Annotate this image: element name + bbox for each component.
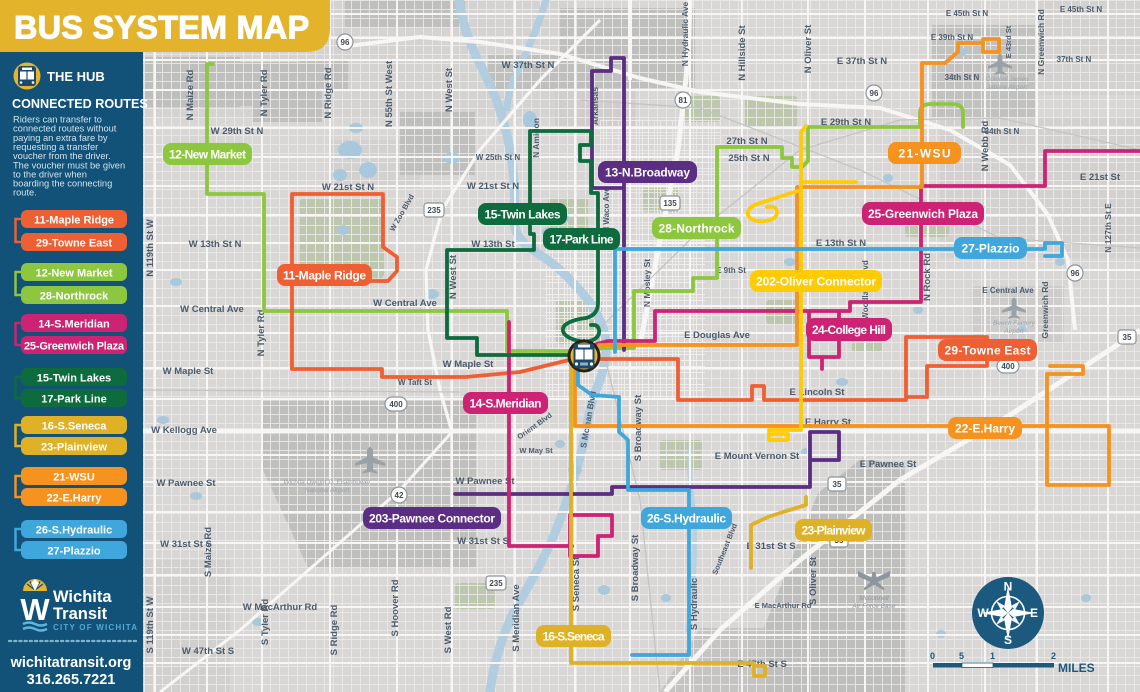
svg-text:W Kellogg Ave: W Kellogg Ave	[151, 425, 217, 436]
svg-text:29-Towne East: 29-Towne East	[945, 344, 1031, 358]
svg-text:W Pawnee St: W Pawnee St	[455, 476, 515, 487]
svg-text:14-S.Meridian: 14-S.Meridian	[470, 397, 542, 411]
svg-text:E 45th St N: E 45th St N	[1060, 5, 1102, 14]
svg-text:Air Force Base: Air Force Base	[852, 603, 896, 610]
svg-text:25-Greenwich Plaza: 25-Greenwich Plaza	[24, 341, 125, 353]
svg-text:S Ridge Rd: S Ridge Rd	[329, 604, 340, 655]
svg-text:Jabara Airport: Jabara Airport	[986, 84, 1029, 91]
svg-text:E 45th St N: E 45th St N	[946, 9, 988, 18]
svg-text:wichitatransit.org: wichitatransit.org	[10, 655, 132, 671]
svg-text:S: S	[1004, 633, 1012, 647]
svg-text:27-Plazzio: 27-Plazzio	[962, 242, 1020, 256]
svg-text:28-Northrock: 28-Northrock	[659, 222, 735, 236]
svg-text:N Webb Rd: N Webb Rd	[980, 121, 991, 172]
svg-text:N Ridge Rd: N Ridge Rd	[323, 67, 334, 118]
svg-text:W: W	[20, 592, 50, 627]
svg-text:E 21st St: E 21st St	[1080, 172, 1121, 183]
svg-text:0: 0	[930, 651, 935, 661]
svg-text:26-S.Hydraulic: 26-S.Hydraulic	[36, 525, 112, 537]
svg-text:21-WSU: 21-WSU	[899, 147, 951, 161]
svg-text:N Maize Rd: N Maize Rd	[185, 69, 196, 120]
svg-text:N Tyler Rd: N Tyler Rd	[256, 309, 267, 356]
svg-text:N Hydraulic Ave: N Hydraulic Ave	[680, 1, 690, 66]
svg-text:E: E	[1030, 606, 1038, 620]
svg-text:Greenwich Rd: Greenwich Rd	[1040, 281, 1050, 338]
svg-text:E Lincoln St: E Lincoln St	[790, 387, 846, 398]
svg-text:12-New Market: 12-New Market	[35, 268, 112, 280]
svg-text:23-Plainview: 23-Plainview	[802, 524, 867, 538]
svg-text:42: 42	[395, 491, 404, 500]
svg-text:S Broadway St: S Broadway St	[630, 534, 641, 601]
svg-text:N Greenwich Rd: N Greenwich Rd	[1036, 9, 1046, 75]
svg-text:29-Towne East: 29-Towne East	[36, 238, 113, 250]
svg-text:W Central Ave: W Central Ave	[180, 304, 244, 315]
svg-text:400: 400	[1001, 362, 1015, 371]
svg-text:15-Twin Lakes: 15-Twin Lakes	[37, 373, 111, 385]
svg-text:400: 400	[389, 400, 403, 409]
svg-text:5: 5	[959, 651, 964, 661]
svg-text:35: 35	[833, 480, 842, 489]
svg-text:S West Rd: S West Rd	[443, 606, 454, 653]
svg-text:W Central Ave: W Central Ave	[373, 298, 437, 309]
svg-text:27-Plazzio: 27-Plazzio	[47, 546, 100, 558]
svg-text:N 127th St E: N 127th St E	[1103, 203, 1113, 253]
svg-text:W May St: W May St	[519, 446, 553, 455]
svg-text:1: 1	[990, 651, 995, 661]
svg-text:W Maple St: W Maple St	[163, 366, 215, 377]
svg-text:W MacArthur Rd: W MacArthur Rd	[243, 602, 318, 613]
svg-text:202-Oliver Connector: 202-Oliver Connector	[756, 275, 876, 289]
svg-text:35: 35	[1123, 333, 1132, 342]
svg-text:W 21st St N: W 21st St N	[467, 181, 519, 192]
svg-text:Colonel James: Colonel James	[986, 76, 1030, 83]
svg-text:N Rock Rd: N Rock Rd	[922, 253, 933, 301]
svg-text:N: N	[1004, 580, 1013, 594]
svg-text:S Oliver St: S Oliver St	[808, 556, 819, 605]
svg-text:E 39th St N: E 39th St N	[931, 33, 973, 42]
svg-text:96: 96	[1071, 269, 1080, 278]
svg-text:E Mount Vernon St: E Mount Vernon St	[715, 451, 800, 462]
svg-text:CONNECTED ROUTES: CONNECTED ROUTES	[12, 97, 148, 111]
svg-text:W 29th St N: W 29th St N	[211, 126, 264, 137]
svg-text:E Douglas Ave: E Douglas Ave	[684, 330, 750, 341]
svg-text:12-New Market: 12-New Market	[169, 148, 246, 162]
svg-text:23-Plainview: 23-Plainview	[41, 442, 107, 454]
svg-text:W 31st St S: W 31st St S	[457, 536, 509, 547]
svg-text:Transit: Transit	[53, 605, 108, 623]
svg-text:14-S.Meridian: 14-S.Meridian	[38, 319, 110, 331]
svg-text:15-Twin Lakes: 15-Twin Lakes	[485, 208, 561, 222]
svg-text:W: W	[977, 606, 989, 620]
svg-text:W Taft St: W Taft St	[398, 378, 432, 387]
svg-text:E 37th St N: E 37th St N	[837, 56, 887, 67]
svg-text:2: 2	[1051, 651, 1056, 661]
svg-text:W 21st St N: W 21st St N	[322, 182, 374, 193]
svg-text:Beech Factory: Beech Factory	[993, 320, 1036, 327]
svg-text:17-Park Line: 17-Park Line	[550, 233, 614, 247]
svg-text:21-WSU: 21-WSU	[53, 472, 95, 484]
svg-text:316.265.7221: 316.265.7221	[27, 672, 116, 688]
svg-text:N 55th St West: N 55th St West	[384, 60, 395, 127]
svg-text:National Airport: National Airport	[305, 487, 351, 494]
svg-text:235: 235	[489, 579, 503, 588]
svg-text:37th St N: 37th St N	[1057, 55, 1092, 64]
svg-text:Wichita Dwight D. Eisenhower: Wichita Dwight D. Eisenhower	[283, 479, 371, 486]
svg-text:22-E.Harry: 22-E.Harry	[955, 422, 1015, 436]
svg-text:Wichita: Wichita	[53, 588, 112, 606]
svg-text:S Meridian Ave: S Meridian Ave	[511, 584, 522, 651]
svg-text:MILES: MILES	[1058, 661, 1095, 675]
svg-text:26-S.Hydraulic: 26-S.Hydraulic	[647, 512, 726, 526]
svg-text:E MacArthur Rd: E MacArthur Rd	[755, 601, 812, 610]
svg-text:N Tyler Rd: N Tyler Rd	[259, 69, 270, 116]
svg-text:S 119th St W: S 119th St W	[145, 596, 156, 653]
svg-text:34th St N: 34th St N	[945, 73, 980, 82]
svg-text:E 31st St S: E 31st St S	[746, 541, 795, 552]
svg-text:16-S.Seneca: 16-S.Seneca	[42, 421, 108, 433]
svg-text:N Waco Ave: N Waco Ave	[602, 187, 611, 233]
svg-text:S Hoover Rd: S Hoover Rd	[390, 579, 401, 636]
svg-text:16-S.Seneca: 16-S.Seneca	[543, 630, 605, 644]
svg-text:W 47th St S: W 47th St S	[182, 646, 234, 657]
svg-text:24-College Hill: 24-College Hill	[812, 323, 886, 337]
svg-text:E Central Ave: E Central Ave	[982, 286, 1034, 295]
svg-text:S Maize Rd: S Maize Rd	[203, 527, 214, 577]
svg-text:N Amidon: N Amidon	[531, 118, 541, 158]
svg-text:22-E.Harry: 22-E.Harry	[46, 493, 102, 505]
svg-text:96: 96	[341, 38, 350, 47]
svg-text:N Oliver St: N Oliver St	[803, 24, 814, 73]
svg-text:13-N.Broadway: 13-N.Broadway	[605, 166, 690, 180]
svg-text:N 119th St W: N 119th St W	[145, 219, 156, 277]
svg-text:Mcconnell: Mcconnell	[859, 595, 889, 602]
svg-text:28-Northrock: 28-Northrock	[40, 291, 109, 303]
svg-text:135: 135	[663, 199, 677, 208]
svg-text:W 13th St N: W 13th St N	[189, 239, 242, 250]
svg-text:11-Maple Ridge: 11-Maple Ridge	[283, 269, 366, 283]
svg-text:N West St: N West St	[448, 254, 459, 299]
svg-text:235: 235	[427, 206, 441, 215]
svg-text:N West St: N West St	[444, 67, 455, 112]
svg-text:203-Pawnee Connector: 203-Pawnee Connector	[369, 512, 495, 526]
svg-text:W Pawnee St: W Pawnee St	[156, 478, 216, 489]
svg-text:THE HUB: THE HUB	[47, 69, 105, 84]
svg-text:Airport: Airport	[1003, 328, 1024, 335]
svg-text:N Hillside St: N Hillside St	[737, 24, 748, 80]
svg-text:25-Greenwich Plaza: 25-Greenwich Plaza	[868, 207, 978, 221]
svg-text:E Pawnee St: E Pawnee St	[860, 459, 917, 470]
svg-text:route.: route.	[13, 188, 37, 198]
svg-text:S Tyler Rd: S Tyler Rd	[260, 599, 271, 645]
svg-text:BUS SYSTEM MAP: BUS SYSTEM MAP	[14, 10, 309, 46]
svg-text:N Mosley St: N Mosley St	[642, 259, 652, 307]
svg-text:96: 96	[870, 89, 879, 98]
svg-text:W 25th St N: W 25th St N	[476, 153, 521, 162]
svg-text:E 9th St: E 9th St	[716, 266, 746, 275]
svg-text:W Maple St: W Maple St	[443, 359, 495, 370]
svg-text:81: 81	[679, 96, 688, 105]
svg-text:CITY OF WICHITA: CITY OF WICHITA	[53, 623, 138, 632]
svg-text:W 37th St N: W 37th St N	[502, 60, 555, 71]
svg-text:17-Park Line: 17-Park Line	[41, 394, 106, 406]
svg-text:11-Maple Ridge: 11-Maple Ridge	[34, 215, 114, 227]
svg-text:25th St N: 25th St N	[728, 153, 769, 164]
svg-text:E 43rd St: E 43rd St	[1004, 25, 1013, 58]
